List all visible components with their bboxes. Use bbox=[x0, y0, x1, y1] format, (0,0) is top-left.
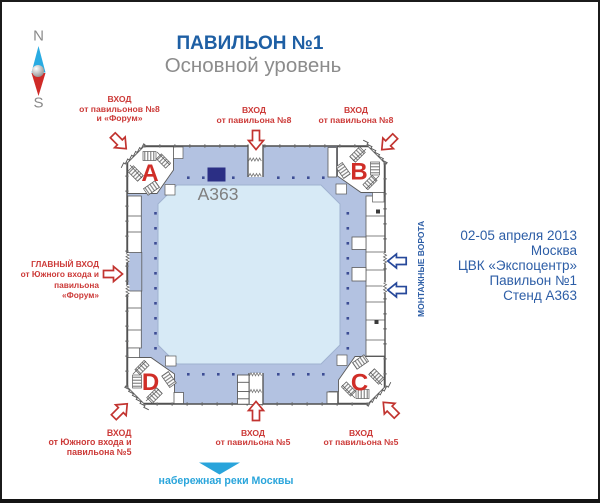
svg-text:A: A bbox=[141, 160, 158, 187]
svg-text:B: B bbox=[350, 159, 367, 186]
svg-text:D: D bbox=[142, 369, 159, 396]
svg-text:C: C bbox=[351, 370, 368, 397]
